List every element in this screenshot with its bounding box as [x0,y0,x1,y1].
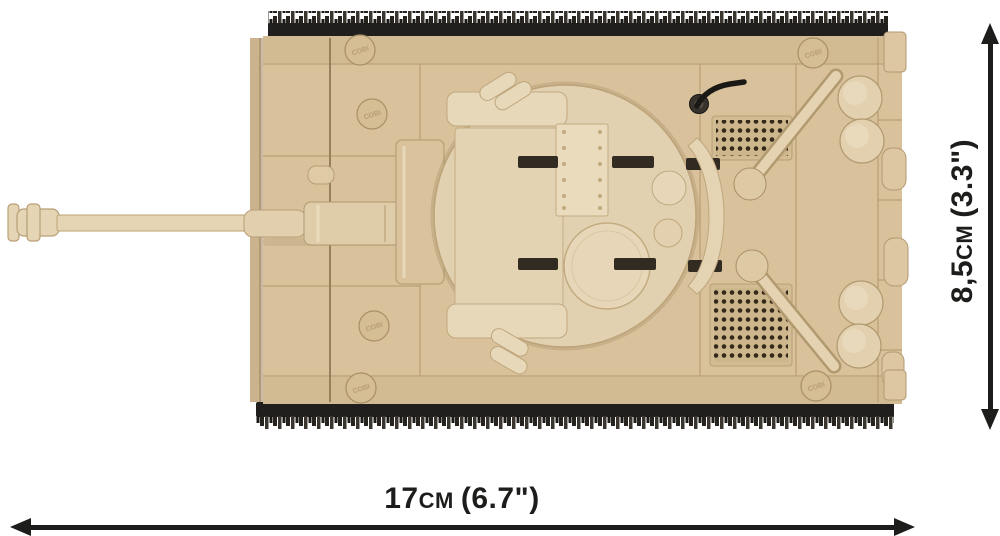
height-value: 8,5 [946,260,979,303]
hull-peg [308,166,334,184]
width-arrow-right-head [894,518,915,536]
width-arrow-left-head [10,518,31,536]
width-value: 17 [384,482,418,515]
width-dimension-label: 17cm(6.7") [312,482,612,516]
width-arrow-line [31,525,894,530]
track-bottom [256,402,894,429]
tank-model-top-view: COBI COBI COBI COBI COBI COBI [0,0,1000,536]
turret-periscope [652,171,686,205]
height-dimension-label: 8,5cm(3.3") [943,71,983,371]
track-hinge-bottom [884,370,906,400]
barrel-mid-sleeve [244,210,306,237]
barrel-tube [57,215,247,231]
width-unit: cm [419,488,454,513]
height-dimension-arrow [981,23,999,430]
track-hinge-top [884,32,906,72]
product-dimension-diagram: COBI COBI COBI COBI COBI COBI 17cm(6.7")… [0,0,1000,536]
height-arrow-bottom-head [981,409,999,430]
height-arrow-line [988,44,993,409]
height-imperial: (3.3") [946,139,979,218]
turret-vent [654,219,682,247]
track-top [268,11,888,38]
muzzle-brake [8,204,59,241]
width-imperial: (6.7") [461,482,540,515]
height-arrow-top-head [981,23,999,44]
riveted-hatch-plate [556,124,608,216]
gun-barrel [8,202,401,245]
height-unit: cm [952,225,977,260]
width-dimension-arrow [10,518,915,536]
